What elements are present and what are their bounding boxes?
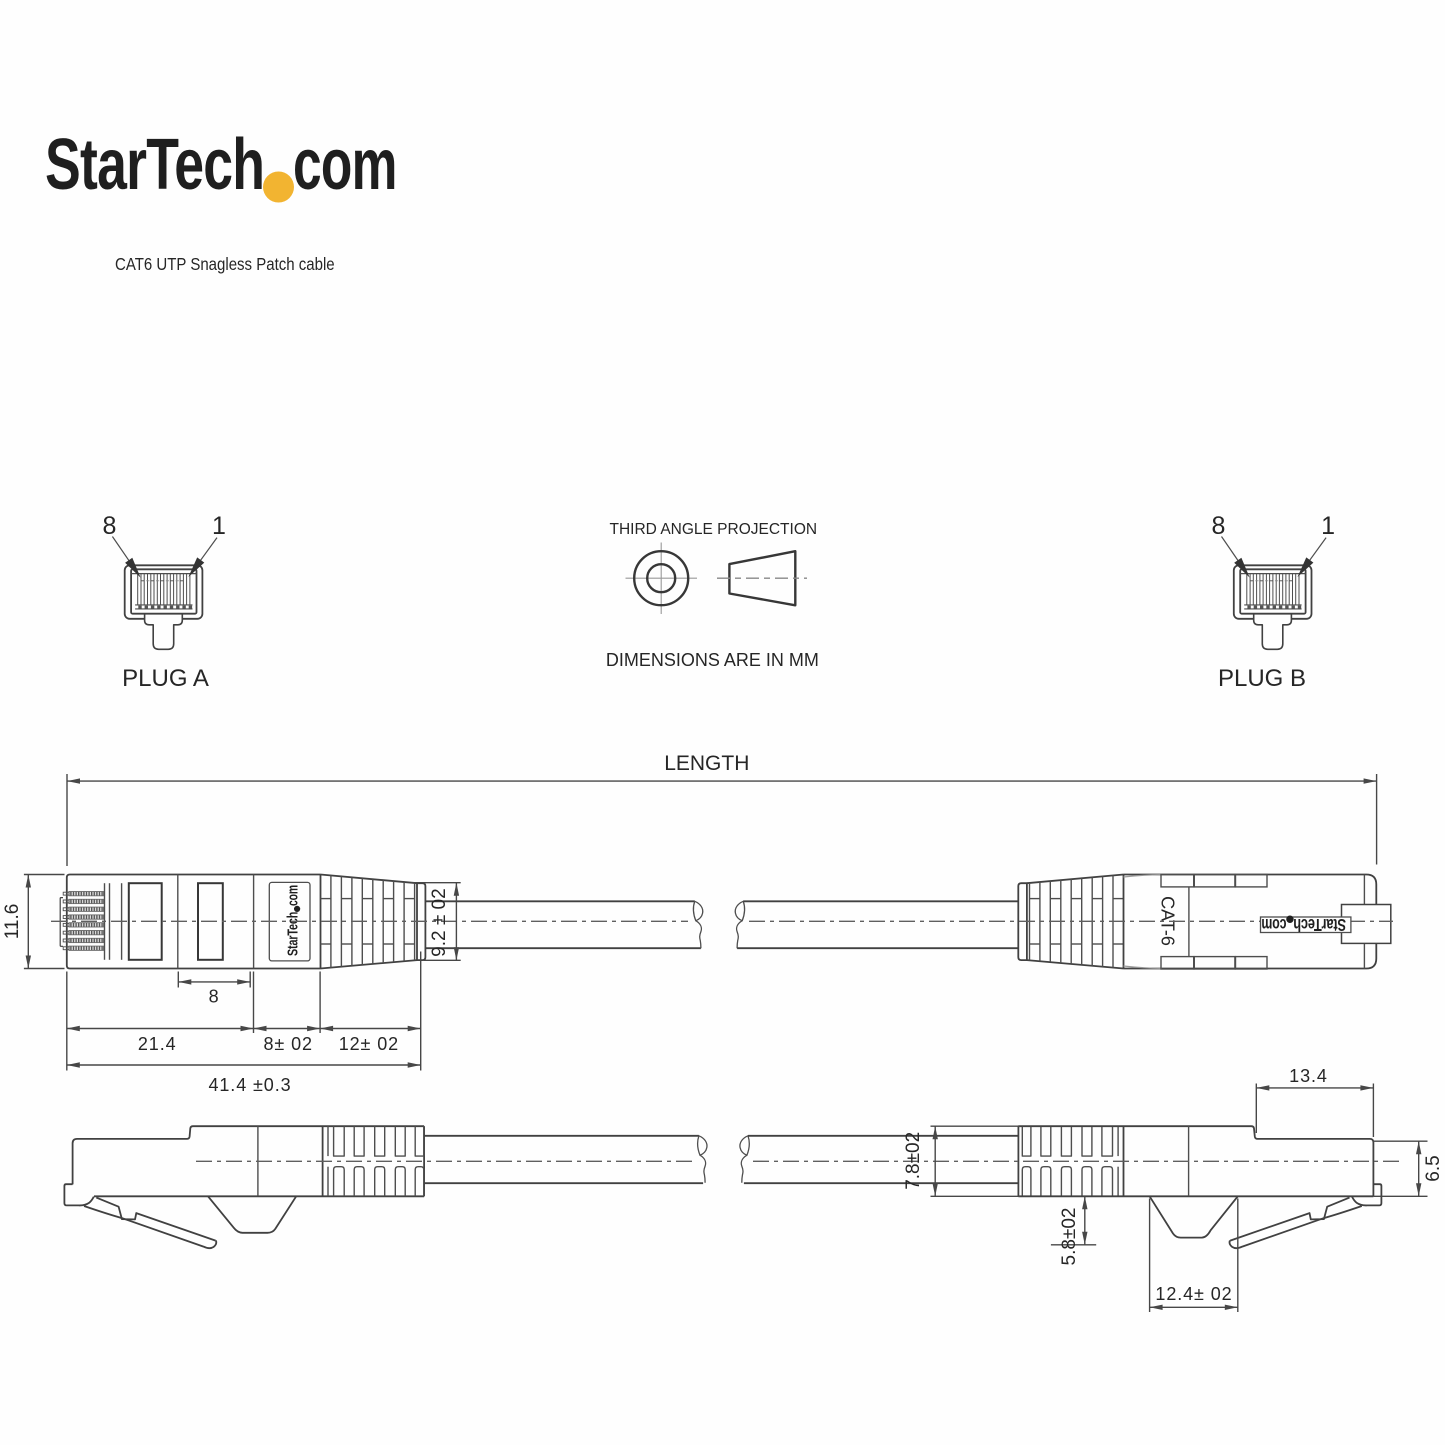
svg-text:1: 1 [1321, 512, 1335, 540]
svg-text:8: 8 [1212, 512, 1226, 540]
svg-text:com: com [285, 885, 301, 906]
svg-text:21.4: 21.4 [138, 1034, 177, 1054]
svg-text:9.2 ± 02: 9.2 ± 02 [429, 888, 450, 957]
svg-text:13.4: 13.4 [1289, 1066, 1328, 1086]
svg-text:5.8±02: 5.8±02 [1059, 1208, 1080, 1266]
svg-text:8: 8 [102, 512, 116, 540]
svg-text:12.4± 02: 12.4± 02 [1155, 1284, 1232, 1304]
svg-text:LENGTH: LENGTH [664, 752, 749, 775]
svg-text:PLUG B: PLUG B [1218, 665, 1306, 692]
svg-text:StarTech: StarTech [1293, 914, 1346, 933]
svg-text:THIRD ANGLE PROJECTION: THIRD ANGLE PROJECTION [610, 521, 818, 538]
svg-text:StarTech: StarTech [45, 125, 264, 204]
svg-text:12± 02: 12± 02 [339, 1034, 399, 1054]
svg-text:8± 02: 8± 02 [263, 1034, 312, 1054]
svg-text:com: com [1262, 914, 1287, 934]
svg-text:DIMENSIONS ARE IN MM: DIMENSIONS ARE IN MM [606, 650, 819, 670]
svg-text:StarTech: StarTech [284, 912, 301, 956]
svg-text:PLUG A: PLUG A [122, 665, 209, 692]
svg-text:CAT6 UTP Snagless Patch cable: CAT6 UTP Snagless Patch cable [115, 255, 335, 274]
svg-text:6.5: 6.5 [1423, 1155, 1444, 1181]
svg-text:8: 8 [209, 987, 219, 1007]
svg-text:11.6: 11.6 [2, 904, 23, 940]
svg-text:7.8±02: 7.8±02 [903, 1132, 924, 1190]
svg-text:41.4 ±0.3: 41.4 ±0.3 [208, 1075, 291, 1095]
svg-text:1: 1 [212, 512, 226, 540]
svg-text:com: com [293, 125, 397, 206]
